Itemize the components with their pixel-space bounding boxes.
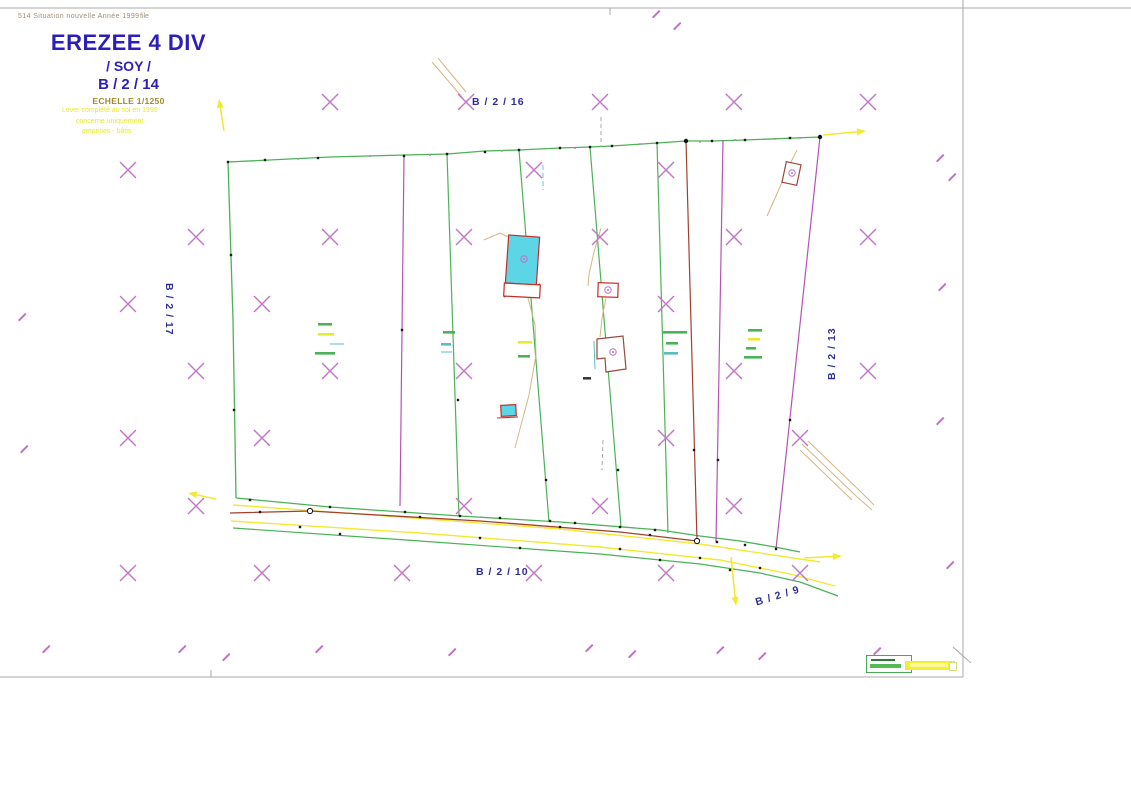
grid-cross	[526, 162, 542, 178]
grid-cross	[120, 162, 136, 178]
direction-arrow-right-head	[833, 553, 842, 560]
survey-point	[230, 254, 232, 256]
survey-point	[619, 526, 621, 528]
survey-point	[716, 541, 718, 543]
grid-cross	[592, 94, 608, 110]
house-symbol-dot	[612, 351, 614, 353]
parcel-annotation	[748, 338, 760, 341]
cadastral-plan-sheet: 514 Situation nouvelle Année 1999 file E…	[0, 0, 1131, 800]
grid-cross	[254, 296, 270, 312]
parcel-ref-label: B / 2 / 13	[826, 327, 838, 380]
grid-cross	[456, 363, 472, 379]
survey-station	[694, 538, 699, 543]
parcel-division	[776, 137, 820, 549]
path-line	[484, 233, 508, 240]
parcel-annotation	[443, 331, 455, 334]
boundary-mark	[799, 137, 801, 139]
dashed-line	[602, 440, 603, 470]
legend-text-bar	[871, 659, 895, 661]
survey-point	[656, 142, 658, 144]
parcel-annotation	[663, 331, 687, 334]
survey-note: concerne uniquement	[76, 118, 143, 125]
survey-point	[789, 419, 791, 421]
sheet-frame-corner	[953, 647, 971, 663]
survey-point	[259, 511, 261, 513]
grid-cross	[120, 296, 136, 312]
parcel-boundary-bottom	[236, 498, 800, 552]
parcel-ref-label: B / 2 / 17	[163, 283, 175, 336]
survey-point	[717, 459, 719, 461]
survey-point	[519, 547, 521, 549]
legend-highlight-text	[910, 663, 948, 667]
survey-point	[789, 137, 791, 139]
survey-point	[545, 479, 547, 481]
coordinate-tick	[946, 561, 954, 569]
boundary-mark	[699, 141, 701, 143]
coordinate-tick	[716, 646, 724, 654]
survey-point	[611, 145, 613, 147]
direction-arrow-up	[220, 108, 224, 131]
survey-point	[227, 161, 229, 163]
survey-point	[559, 526, 561, 528]
grid-cross	[860, 229, 876, 245]
coordinate-tick	[18, 313, 26, 321]
grid-cross	[792, 565, 808, 581]
survey-point	[559, 147, 561, 149]
coordinate-tick	[936, 417, 944, 425]
direction-arrow-left-head	[188, 491, 198, 498]
leader-arrow-tip	[438, 58, 466, 92]
leader-arrow-line	[800, 450, 852, 500]
leader-arrow-line	[808, 441, 862, 493]
grid-cross	[658, 296, 674, 312]
direction-arrow-down-head	[732, 597, 739, 606]
grid-cross	[592, 498, 608, 514]
coordinate-tick	[20, 445, 28, 453]
survey-point	[401, 329, 403, 331]
survey-point	[459, 515, 461, 517]
survey-point	[759, 567, 761, 569]
grid-cross	[394, 565, 410, 581]
grid-cross	[120, 430, 136, 446]
sheet-reference: B / 2 / 14	[36, 76, 221, 93]
survey-note: Lever complété au sol en 1999	[62, 107, 158, 114]
coordinate-tick	[178, 645, 186, 653]
survey-point	[589, 146, 591, 148]
survey-point	[499, 517, 501, 519]
parcel-division	[716, 140, 723, 542]
survey-point	[446, 153, 448, 155]
parcel-division	[686, 141, 697, 541]
parcel-annotation	[583, 377, 591, 380]
parcel-division	[519, 150, 549, 522]
survey-point	[339, 533, 341, 535]
direction-arrow-left	[197, 495, 216, 499]
file-info: 514 Situation nouvelle Année 1999	[18, 13, 139, 20]
boundary-mark	[734, 139, 736, 141]
direction-arrow-right	[823, 132, 857, 135]
survey-point	[549, 520, 551, 522]
parcel-annotation	[518, 341, 532, 344]
boundary-mark	[297, 158, 299, 160]
coordinate-tick	[315, 645, 323, 653]
north-arrow	[398, 31, 452, 85]
boundary-mark	[639, 143, 641, 145]
coordinate-tick	[948, 173, 956, 181]
grid-cross	[658, 162, 674, 178]
boundary-mark	[369, 155, 371, 157]
survey-point	[775, 548, 777, 550]
grid-cross	[726, 363, 742, 379]
survey-point	[617, 469, 619, 471]
survey-point	[479, 537, 481, 539]
house-symbol-dot	[523, 258, 525, 260]
road-edge	[233, 528, 838, 596]
survey-point	[729, 569, 731, 571]
leader-arrow-tip	[432, 62, 462, 97]
grid-cross	[322, 363, 338, 379]
plan-subtitle: / SOY /	[36, 58, 221, 74]
survey-point	[744, 544, 746, 546]
survey-point	[264, 159, 266, 161]
parcel-boundary-left	[228, 162, 236, 498]
parcel-annotation	[746, 347, 756, 350]
grid-cross	[120, 565, 136, 581]
grid-cross	[254, 565, 270, 581]
legend-highlight-end	[949, 662, 957, 671]
survey-dot	[818, 135, 822, 139]
building-pool	[505, 235, 539, 285]
grid-cross	[188, 363, 204, 379]
survey-dot	[684, 139, 688, 143]
grid-cross	[792, 430, 808, 446]
parcel-annotation	[441, 343, 451, 346]
survey-point	[744, 139, 746, 141]
legend-highlight-bar	[905, 661, 955, 670]
survey-note: emprises - bâtis	[82, 128, 131, 135]
boundary-mark	[501, 150, 503, 152]
grid-cross	[860, 94, 876, 110]
coordinate-tick	[652, 10, 660, 18]
grid-cross	[658, 565, 674, 581]
parcel-annotation	[666, 342, 678, 345]
leader-arrow-tip	[856, 496, 872, 510]
grid-cross	[254, 430, 270, 446]
grid-cross	[726, 229, 742, 245]
building-baseline	[497, 417, 518, 418]
building-outline	[597, 336, 626, 372]
survey-point	[403, 155, 405, 157]
road-edge	[231, 521, 835, 586]
grid-cross	[188, 229, 204, 245]
grid-cross	[456, 229, 472, 245]
plan-drawing	[0, 0, 1131, 800]
survey-point	[654, 529, 656, 531]
survey-point	[699, 557, 701, 559]
survey-point	[484, 151, 486, 153]
boundary-mark	[774, 138, 776, 140]
file-word: file	[140, 13, 149, 20]
coordinate-tick	[585, 644, 593, 652]
parcel-division	[657, 143, 668, 533]
parcel-ref-label: B / 2 / 16	[472, 96, 525, 108]
survey-point	[649, 534, 651, 536]
house-symbol-dot	[791, 172, 793, 174]
survey-point	[711, 140, 713, 142]
grid-cross	[322, 229, 338, 245]
parcel-annotation	[315, 352, 335, 355]
boundary-mark	[574, 147, 576, 149]
plan-title: EREZEE 4 DIV	[36, 30, 221, 56]
coordinate-tick	[758, 652, 766, 660]
survey-point	[329, 506, 331, 508]
parcel-division	[447, 154, 459, 516]
road-edge	[233, 505, 820, 562]
direction-arrow-right-head	[857, 128, 866, 135]
scale-label: ECHELLE 1/1250	[36, 96, 221, 106]
survey-station	[307, 508, 312, 513]
coordinate-tick	[938, 283, 946, 291]
parcel-annotation	[318, 323, 332, 326]
survey-point	[299, 526, 301, 528]
survey-point	[693, 449, 695, 451]
building-hatched	[504, 283, 541, 298]
survey-point	[404, 511, 406, 513]
leader-arrow-line	[802, 444, 856, 496]
grid-cross	[188, 498, 204, 514]
building-cyan-small	[501, 405, 517, 417]
direction-arrow-right	[804, 556, 833, 558]
coordinate-tick	[448, 648, 456, 656]
survey-point	[518, 149, 520, 151]
survey-point	[659, 559, 661, 561]
parcel-annotation	[518, 355, 530, 358]
survey-point	[619, 548, 621, 550]
house-symbol-dot	[607, 289, 609, 291]
legend-fill-bar	[870, 664, 901, 668]
boundary-mark	[429, 154, 431, 156]
survey-point	[249, 499, 251, 501]
survey-point	[457, 399, 459, 401]
grid-cross	[726, 94, 742, 110]
coordinate-tick	[628, 650, 636, 658]
survey-point	[574, 522, 576, 524]
coordinate-tick	[936, 154, 944, 162]
parcel-annotation	[664, 352, 678, 355]
parcel-ref-label: B / 2 / 10	[476, 566, 529, 578]
annotation-line	[594, 341, 595, 369]
grid-cross	[322, 94, 338, 110]
title-block: EREZEE 4 DIV / SOY / B / 2 / 14 ECHELLE …	[36, 30, 221, 106]
coordinate-tick	[222, 653, 230, 661]
coordinate-tick	[42, 645, 50, 653]
grid-cross	[726, 498, 742, 514]
parcel-annotation	[318, 333, 334, 336]
coordinate-tick	[673, 22, 681, 30]
parcel-annotation	[744, 356, 762, 359]
survey-point	[419, 516, 421, 518]
survey-point	[233, 409, 235, 411]
survey-point	[317, 157, 319, 159]
grid-cross	[860, 363, 876, 379]
parcel-annotation	[748, 329, 762, 332]
